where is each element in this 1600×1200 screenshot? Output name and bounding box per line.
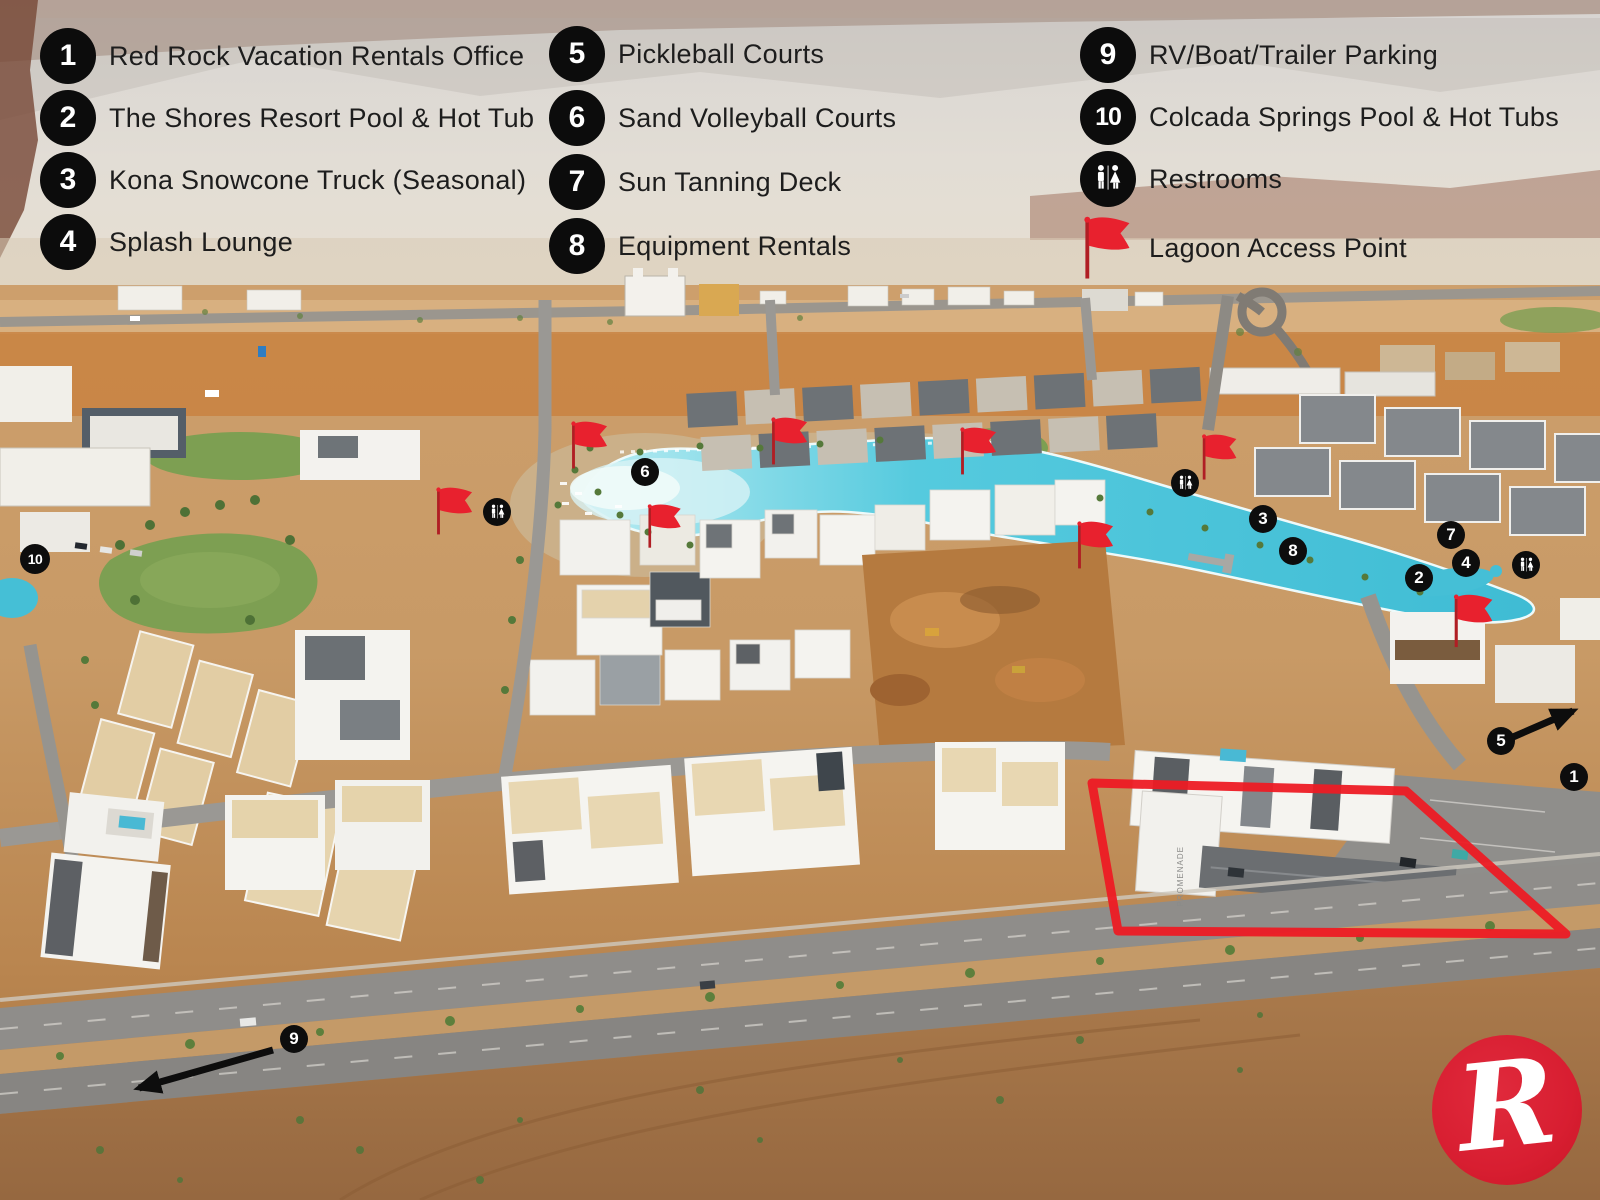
- legend-item-10: 10 Colcada Springs Pool & Hot Tubs: [1080, 89, 1559, 145]
- lagoon-access-flag-1: [432, 486, 478, 538]
- lagoon-access-flag-3: [642, 503, 688, 551]
- lagoon-access-flag-5: [956, 426, 1002, 478]
- map-marker-1: 1: [1560, 763, 1588, 791]
- legend-badge-1: 1: [40, 28, 96, 84]
- legend: 1 Red Rock Vacation Rentals Office 2 The…: [0, 0, 1600, 290]
- property-outline: [1080, 770, 1580, 955]
- legend-label-5: Pickleball Courts: [605, 39, 824, 70]
- map-marker-3: 3: [1249, 505, 1277, 533]
- lagoon-access-flag-7: [1197, 433, 1243, 483]
- resort-map-image: 1 Red Rock Vacation Rentals Office 2 The…: [0, 0, 1600, 1200]
- legend-item-9: 9 RV/Boat/Trailer Parking: [1080, 27, 1559, 83]
- legend-badge-7: 7: [549, 154, 605, 210]
- legend-label-8: Equipment Rentals: [605, 231, 851, 262]
- map-marker-4: 4: [1452, 549, 1480, 577]
- legend-label-lagoon-access: Lagoon Access Point: [1136, 233, 1407, 264]
- legend-item-lagoon-access: Lagoon Access Point: [1080, 213, 1559, 283]
- legend-badge-4: 4: [40, 214, 96, 270]
- map-marker-5: 5: [1487, 727, 1515, 755]
- legend-label-10: Colcada Springs Pool & Hot Tubs: [1136, 102, 1559, 133]
- legend-item-1: 1 Red Rock Vacation Rentals Office: [40, 28, 534, 84]
- lagoon-access-flag-8: [1451, 593, 1497, 649]
- legend-item-3: 3 Kona Snowcone Truck (Seasonal): [40, 152, 534, 208]
- map-marker-6: 6: [631, 458, 659, 486]
- legend-label-7: Sun Tanning Deck: [605, 167, 841, 198]
- legend-label-1: Red Rock Vacation Rentals Office: [96, 41, 524, 72]
- promenade-building-label: PROMENADE: [1176, 846, 1185, 907]
- legend-item-7: 7 Sun Tanning Deck: [549, 154, 896, 210]
- legend-label-4: Splash Lounge: [96, 227, 293, 258]
- pickleball-direction-arrow: [1505, 693, 1600, 748]
- map-marker-9: 9: [280, 1025, 308, 1053]
- map-marker-2: 2: [1405, 564, 1433, 592]
- map-restroom-icon-west: [483, 498, 511, 526]
- legend-badge-3: 3: [40, 152, 96, 208]
- legend-item-4: 4 Splash Lounge: [40, 214, 534, 270]
- brand-logo: R: [1432, 1035, 1582, 1185]
- legend-item-restrooms: Restrooms: [1080, 151, 1559, 207]
- legend-item-6: 6 Sand Volleyball Courts: [549, 90, 896, 146]
- map-marker-8: 8: [1279, 537, 1307, 565]
- lagoon-access-flag-2: [567, 420, 613, 472]
- map-restroom-icon-east: [1512, 551, 1540, 579]
- legend-label-3: Kona Snowcone Truck (Seasonal): [96, 165, 526, 196]
- legend-column-3: 9 RV/Boat/Trailer Parking 10 Colcada Spr…: [1080, 27, 1559, 283]
- legend-badge-10: 10: [1080, 89, 1136, 145]
- legend-badge-5: 5: [549, 26, 605, 82]
- legend-column-1: 1 Red Rock Vacation Rentals Office 2 The…: [40, 28, 534, 270]
- legend-badge-6: 6: [549, 90, 605, 146]
- map-restroom-icon-north: [1171, 469, 1199, 497]
- legend-label-restrooms: Restrooms: [1136, 164, 1282, 195]
- legend-column-2: 5 Pickleball Courts 6 Sand Volleyball Co…: [549, 26, 896, 274]
- legend-badge-9: 9: [1080, 27, 1136, 83]
- legend-badge-8: 8: [549, 218, 605, 274]
- legend-item-5: 5 Pickleball Courts: [549, 26, 896, 82]
- restroom-icon: [1080, 151, 1136, 207]
- map-marker-7: 7: [1437, 521, 1465, 549]
- brand-logo-letter: R: [1450, 1030, 1562, 1178]
- legend-item-2: 2 The Shores Resort Pool & Hot Tub: [40, 90, 534, 146]
- legend-label-6: Sand Volleyball Courts: [605, 103, 896, 134]
- legend-label-9: RV/Boat/Trailer Parking: [1136, 40, 1438, 71]
- legend-label-2: The Shores Resort Pool & Hot Tub: [96, 103, 534, 134]
- flag-icon: [1080, 213, 1136, 283]
- rv-parking-direction-arrow: [105, 1030, 285, 1105]
- lagoon-access-flag-4: [767, 416, 813, 468]
- map-marker-10: 10: [20, 544, 50, 574]
- legend-badge-2: 2: [40, 90, 96, 146]
- lagoon-access-flag-6: [1073, 520, 1119, 572]
- legend-item-8: 8 Equipment Rentals: [549, 218, 896, 274]
